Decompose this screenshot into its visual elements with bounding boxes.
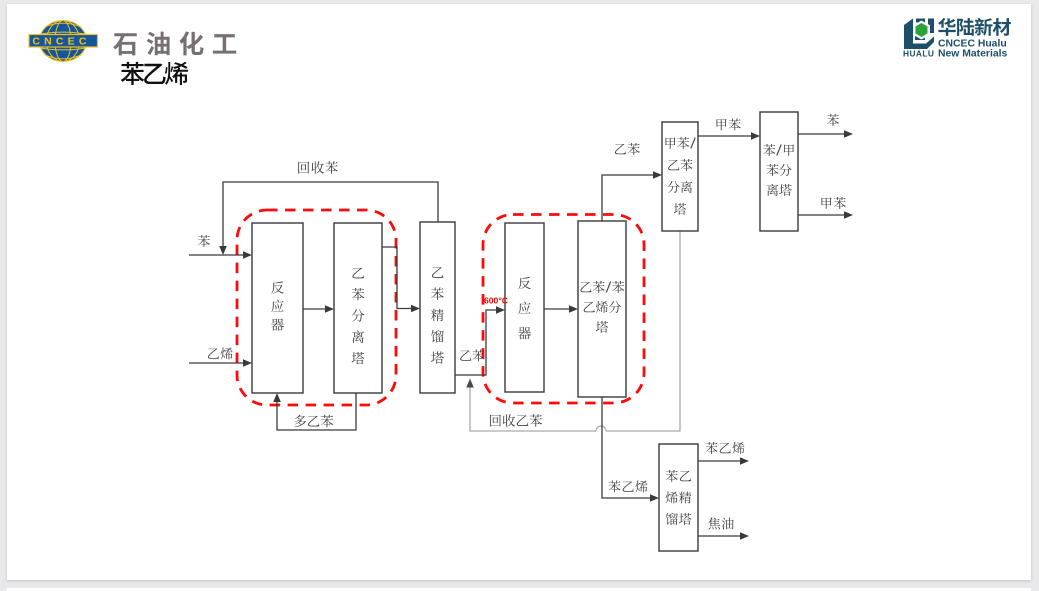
svg-text:600°C: 600°C: [484, 296, 508, 306]
svg-text:HUALU: HUALU: [903, 49, 934, 59]
svg-text:New Materials: New Materials: [938, 49, 1008, 60]
svg-text:CNCEC: CNCEC: [32, 36, 90, 48]
